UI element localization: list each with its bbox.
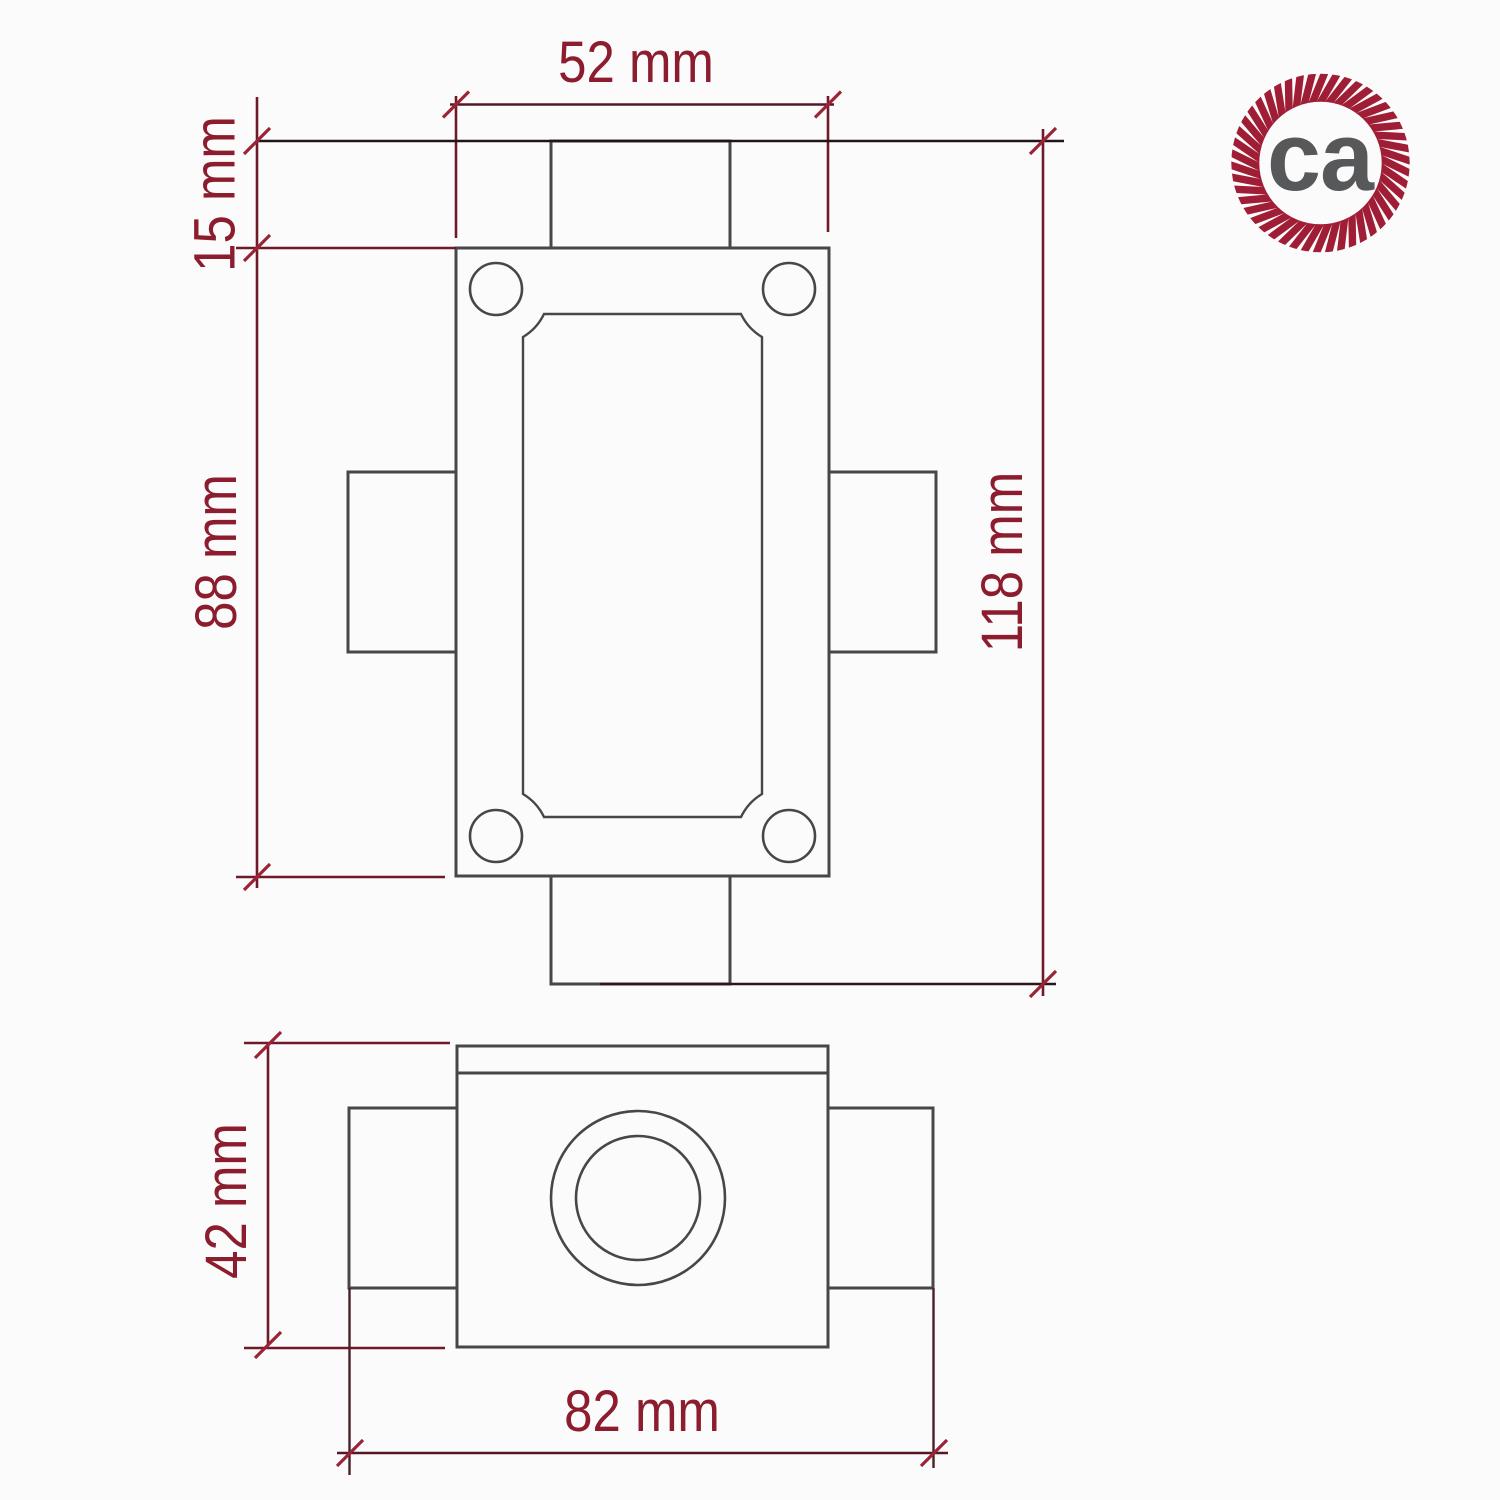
svg-text:42 mm: 42 mm bbox=[193, 1123, 259, 1279]
svg-text:82 mm: 82 mm bbox=[564, 1378, 720, 1444]
svg-text:118 mm: 118 mm bbox=[969, 472, 1035, 652]
svg-text:15 mm: 15 mm bbox=[181, 116, 247, 272]
svg-text:88 mm: 88 mm bbox=[183, 474, 249, 630]
svg-text:52 mm: 52 mm bbox=[558, 29, 714, 95]
svg-text:ca: ca bbox=[1267, 102, 1375, 211]
